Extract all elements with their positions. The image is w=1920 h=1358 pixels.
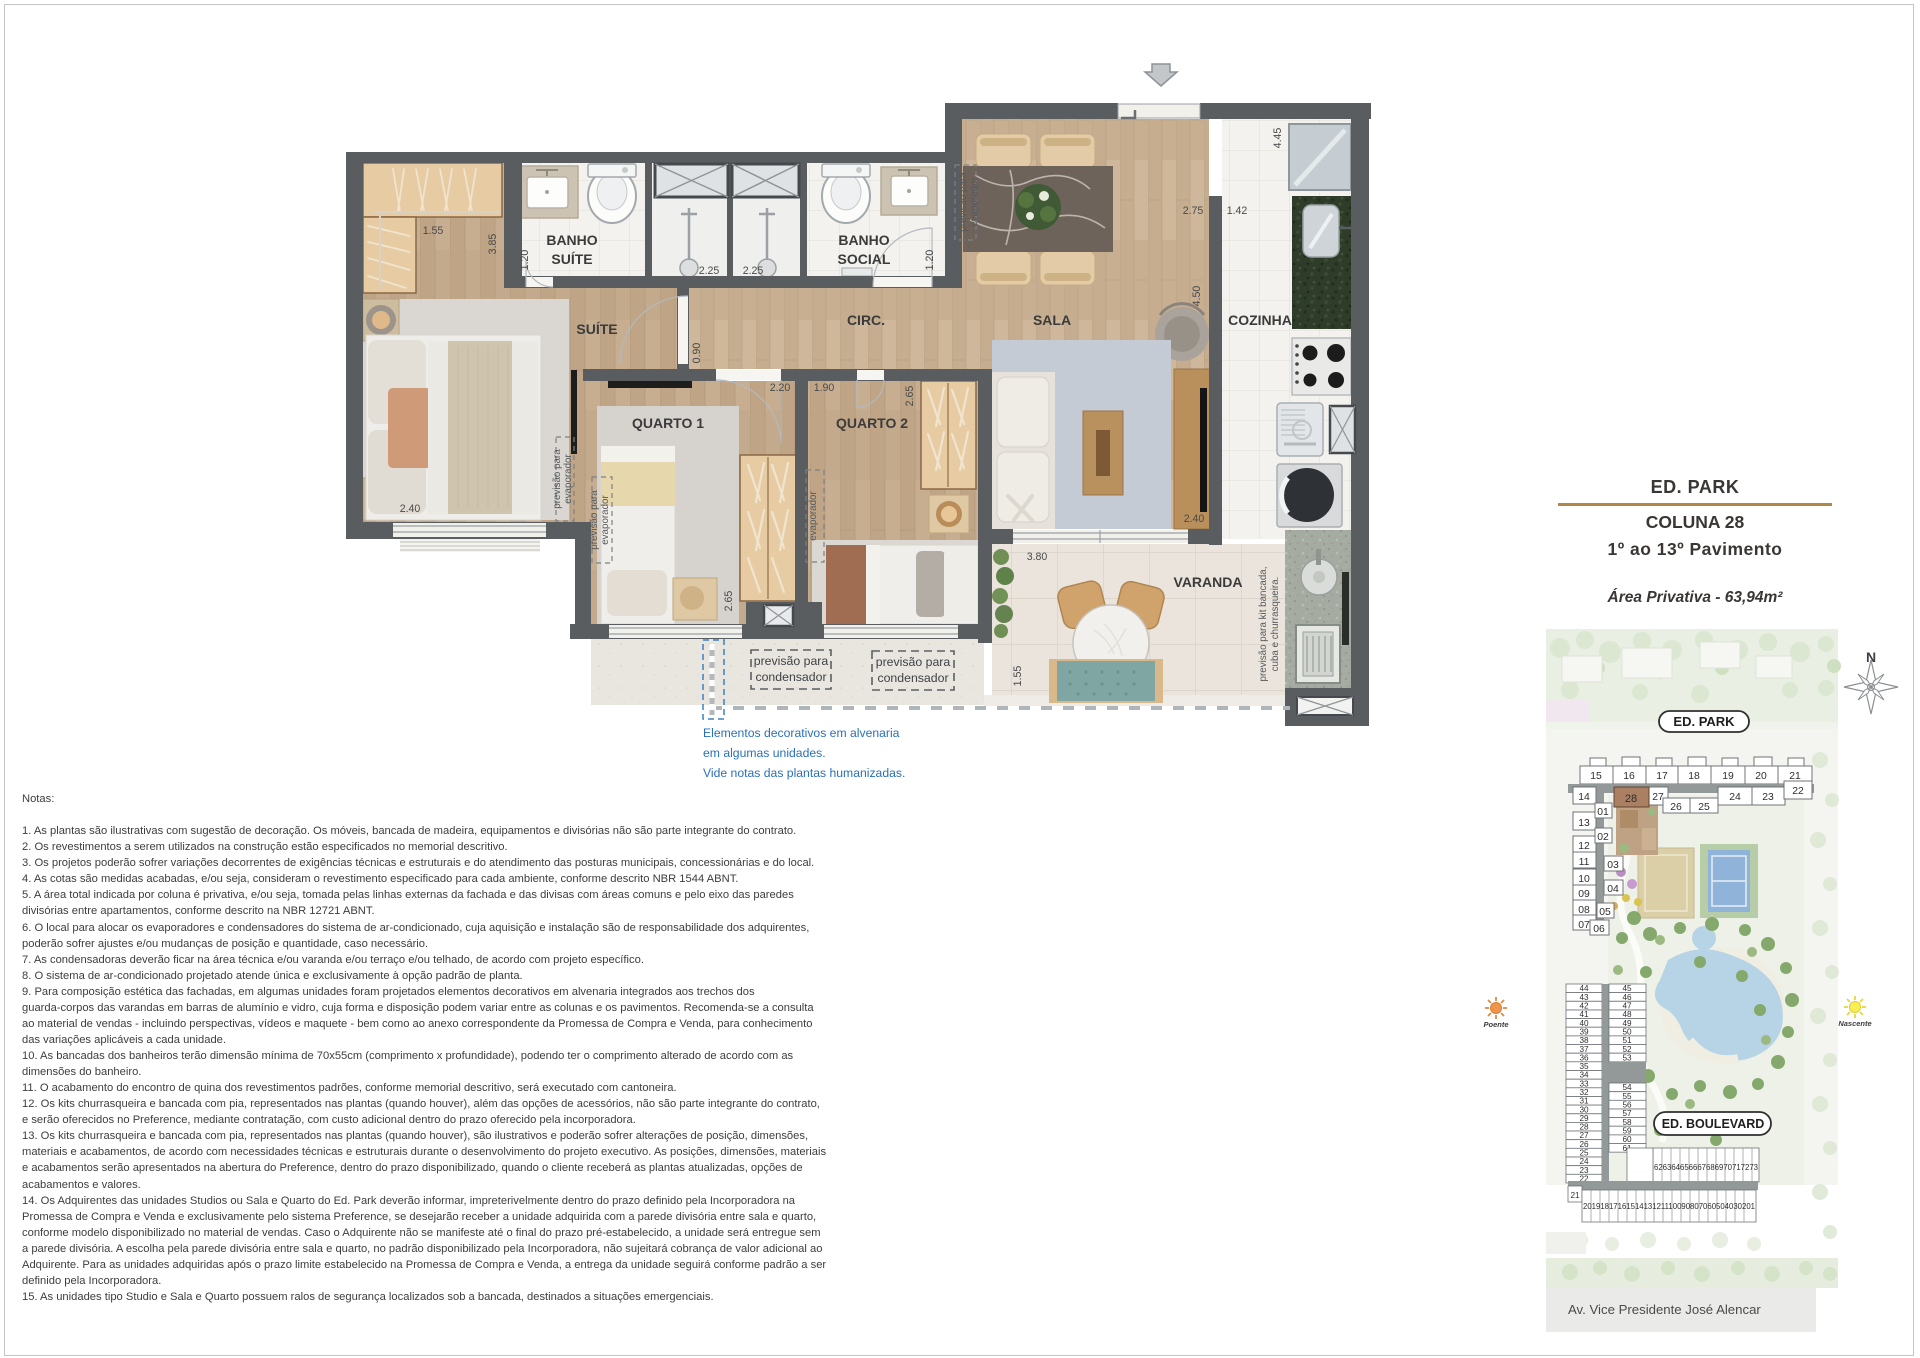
svg-text:1.55: 1.55 (1012, 666, 1024, 687)
svg-text:06: 06 (1593, 924, 1605, 935)
svg-text:previsão para: previsão para (754, 654, 829, 668)
svg-text:SUÍTE: SUÍTE (551, 251, 592, 267)
svg-text:N: N (1866, 649, 1876, 665)
svg-text:COZINHA: COZINHA (1228, 312, 1292, 328)
svg-text:03: 03 (1607, 860, 1619, 871)
svg-text:BANHO: BANHO (546, 232, 597, 248)
svg-text:SUÍTE: SUÍTE (576, 321, 617, 337)
svg-text:54: 54 (1622, 1083, 1632, 1092)
svg-text:3.85: 3.85 (487, 234, 499, 255)
svg-text:24: 24 (1729, 792, 1741, 803)
svg-text:53: 53 (1622, 1053, 1632, 1062)
svg-text:Av. Vice Presidente José Alenc: Av. Vice Presidente José Alencar (1568, 1302, 1761, 1317)
svg-text:1.42: 1.42 (1227, 205, 1248, 217)
svg-text:47: 47 (1622, 1002, 1632, 1011)
svg-text:04: 04 (1607, 884, 1619, 895)
svg-text:25: 25 (1698, 802, 1710, 813)
svg-text:27: 27 (1652, 792, 1664, 803)
svg-text:SOCIAL: SOCIAL (838, 251, 891, 267)
svg-text:1.20: 1.20 (924, 250, 936, 271)
svg-text:15: 15 (1590, 771, 1602, 782)
svg-text:09: 09 (1578, 889, 1590, 900)
svg-text:20: 20 (1755, 771, 1767, 782)
svg-text:25: 25 (1579, 1149, 1589, 1158)
svg-text:2.40: 2.40 (1184, 513, 1205, 525)
svg-text:VARANDA: VARANDA (1174, 574, 1243, 590)
svg-text:condensador: condensador (755, 670, 826, 684)
svg-text:2.75: 2.75 (1183, 205, 1204, 217)
svg-text:ED. BOULEVARD: ED. BOULEVARD (1662, 1117, 1765, 1131)
svg-text:BANHO: BANHO (838, 232, 889, 248)
svg-text:1.20: 1.20 (519, 250, 531, 271)
svg-text:2.65: 2.65 (723, 591, 735, 612)
svg-text:2.65: 2.65 (904, 386, 916, 407)
svg-text:cuba e churrasqueira.: cuba e churrasqueira. (1270, 577, 1281, 672)
svg-text:2.25: 2.25 (699, 265, 720, 277)
svg-text:11: 11 (1579, 857, 1590, 868)
svg-text:0.90: 0.90 (691, 343, 703, 364)
svg-text:19: 19 (1722, 771, 1734, 782)
svg-text:38: 38 (1579, 1036, 1589, 1045)
svg-text:201918171615141312111009080706: 2019181716151413121110090807060504030201 (1583, 1202, 1755, 1211)
svg-text:evaporador: evaporador (969, 176, 980, 226)
svg-text:60: 60 (1622, 1135, 1632, 1144)
svg-text:Elementos decorativos em alven: Elementos decorativos em alvenaria (703, 726, 900, 740)
svg-text:24: 24 (1579, 1157, 1589, 1166)
svg-text:QUARTO 2: QUARTO 2 (836, 415, 908, 431)
svg-text:10: 10 (1578, 874, 1590, 885)
svg-text:35: 35 (1579, 1062, 1589, 1071)
svg-text:em algumas unidades.: em algumas unidades. (703, 746, 826, 760)
svg-text:2.20: 2.20 (770, 382, 791, 394)
svg-text:previsão para: previsão para (589, 490, 600, 550)
svg-text:40: 40 (1579, 1019, 1589, 1028)
svg-text:21: 21 (1789, 771, 1801, 782)
svg-text:1.90: 1.90 (814, 382, 835, 394)
svg-text:2.25: 2.25 (743, 265, 764, 277)
svg-text:42: 42 (1579, 1002, 1589, 1011)
svg-text:previsão para kit bancada,: previsão para kit bancada, (1258, 567, 1269, 682)
svg-text:14: 14 (1578, 792, 1590, 803)
svg-text:4.50: 4.50 (1191, 286, 1203, 307)
svg-text:Vide notas das plantas humaniz: Vide notas das plantas humanizadas. (703, 766, 905, 780)
svg-text:previsão para: previsão para (958, 172, 969, 232)
svg-text:1.55: 1.55 (423, 225, 444, 237)
svg-text:44: 44 (1579, 984, 1589, 993)
svg-text:13: 13 (1578, 818, 1590, 829)
svg-text:Nascente: Nascente (1838, 1019, 1871, 1028)
svg-text:626364656667686970717273: 626364656667686970717273 (1654, 1163, 1758, 1172)
svg-text:18: 18 (1688, 771, 1700, 782)
svg-text:49: 49 (1622, 1019, 1632, 1028)
svg-text:45: 45 (1622, 984, 1632, 993)
svg-text:58: 58 (1622, 1118, 1632, 1127)
svg-text:evaporador: evaporador (600, 494, 611, 544)
svg-text:evaporador: evaporador (563, 453, 574, 503)
svg-text:CIRC.: CIRC. (847, 312, 885, 328)
svg-text:30: 30 (1579, 1105, 1589, 1114)
svg-text:05: 05 (1599, 907, 1611, 918)
svg-text:51: 51 (1622, 1036, 1632, 1045)
svg-text:32: 32 (1579, 1088, 1589, 1097)
svg-text:QUARTO 1: QUARTO 1 (632, 415, 704, 431)
svg-text:56: 56 (1622, 1101, 1632, 1110)
svg-text:02: 02 (1597, 832, 1609, 843)
svg-text:ED. PARK: ED. PARK (1673, 714, 1735, 729)
svg-text:SALA: SALA (1033, 312, 1071, 328)
svg-text:4.45: 4.45 (1272, 128, 1284, 149)
svg-text:condensador: condensador (877, 671, 948, 685)
svg-text:07: 07 (1578, 920, 1590, 931)
svg-text:22: 22 (1792, 786, 1804, 797)
svg-text:01: 01 (1597, 807, 1609, 818)
svg-text:17: 17 (1656, 771, 1668, 782)
svg-text:26: 26 (1670, 802, 1682, 813)
svg-text:34: 34 (1579, 1071, 1589, 1080)
svg-text:previsão para: previsão para (876, 655, 951, 669)
svg-text:16: 16 (1623, 771, 1635, 782)
svg-text:21: 21 (1570, 1191, 1580, 1200)
svg-text:2.40: 2.40 (400, 503, 421, 515)
svg-text:3.80: 3.80 (1027, 551, 1048, 563)
svg-text:previsão para: previsão para (552, 449, 563, 509)
svg-text:28: 28 (1625, 793, 1637, 805)
svg-text:evaporador: evaporador (808, 490, 819, 540)
svg-text:23: 23 (1762, 792, 1774, 803)
svg-text:12: 12 (1578, 841, 1590, 852)
svg-text:27: 27 (1579, 1131, 1589, 1140)
svg-text:08: 08 (1578, 905, 1590, 916)
